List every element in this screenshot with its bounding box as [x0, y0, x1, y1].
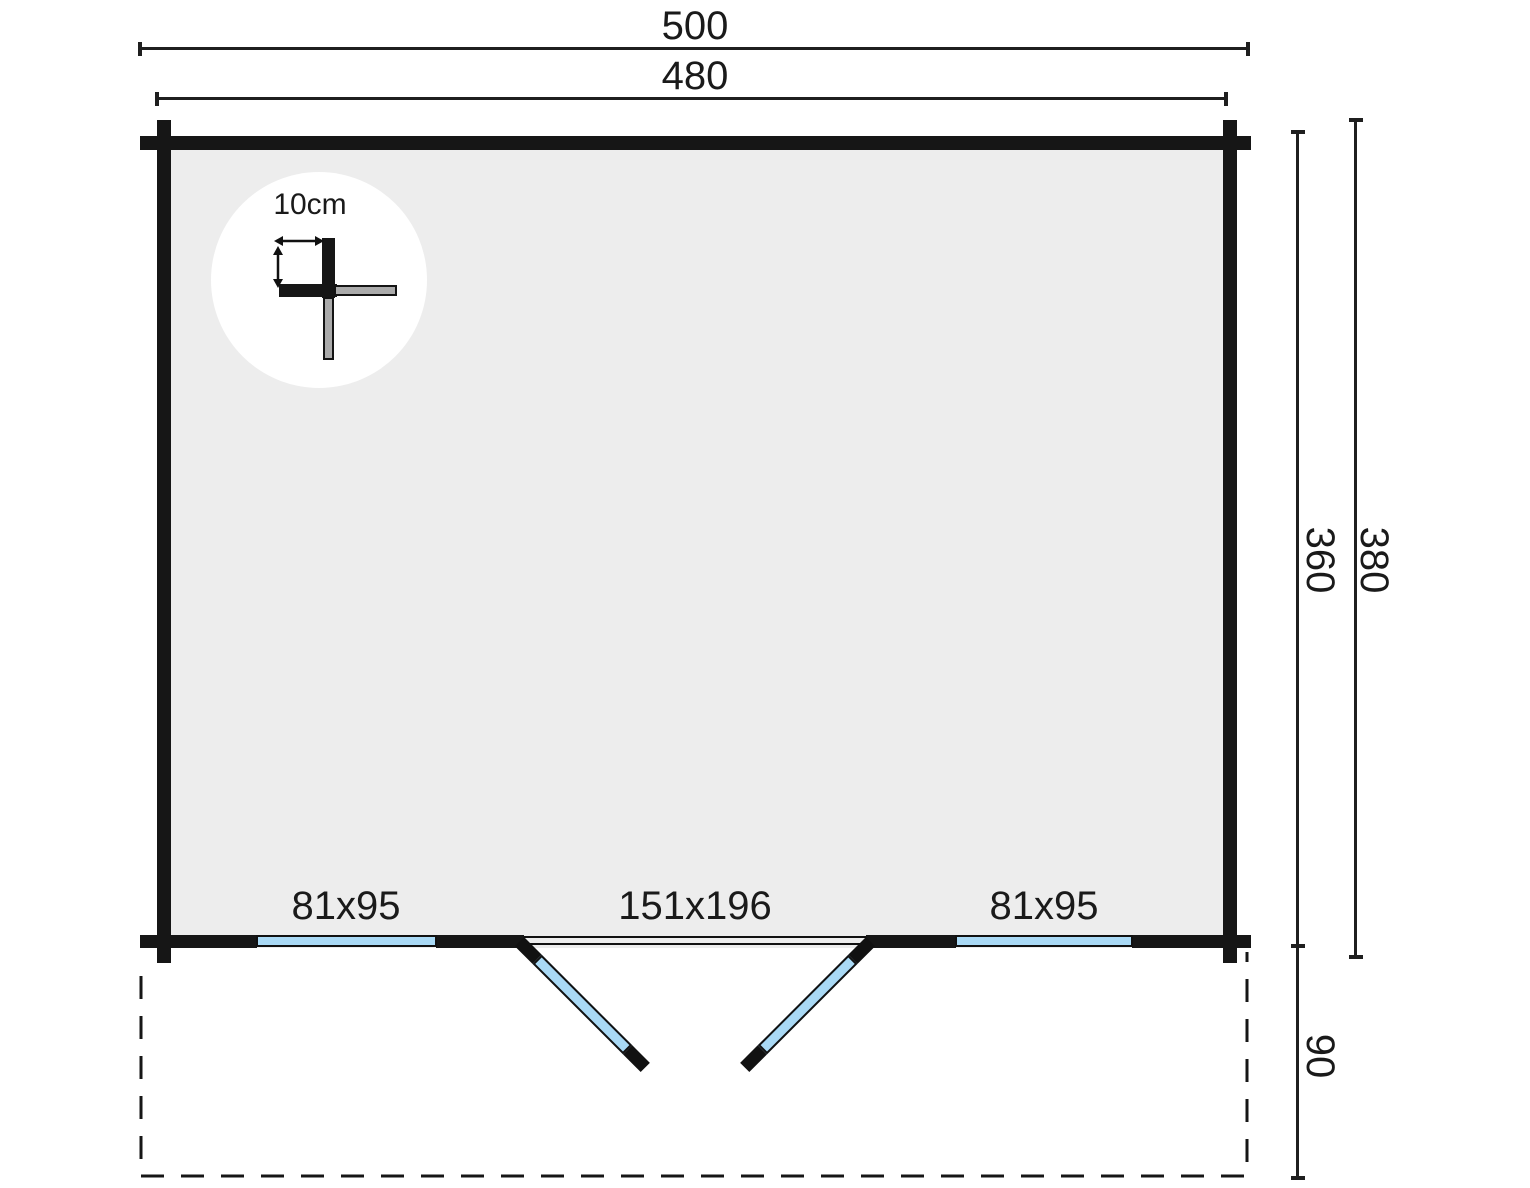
inner-depth-tick-top [1291, 130, 1305, 134]
detail-log-end-horizontal [334, 285, 397, 296]
overall-depth-value: 380 [1352, 527, 1396, 594]
inner-width-tick-right [1224, 92, 1228, 106]
floor-plan-canvas: 500 480 [0, 0, 1530, 1188]
right-window [955, 935, 1133, 947]
left-window [256, 935, 437, 947]
wall-left [157, 120, 171, 963]
inner-depth-value: 360 [1298, 527, 1342, 594]
terrace-depth-value: 90 [1298, 1034, 1342, 1079]
inner-width-value: 480 [595, 54, 795, 98]
inner-width-tick-left [155, 92, 159, 106]
wall-bottom-segment-4 [1132, 935, 1251, 948]
terrace-depth-tick-bottom [1291, 1176, 1305, 1180]
overall-width-value: 500 [595, 4, 795, 48]
overall-width-tick-left [138, 42, 142, 56]
door-threshold-inner [524, 943, 866, 945]
door-threshold-outer [524, 936, 866, 938]
overall-width-line [140, 47, 1249, 50]
wall-bottom-segment-1 [140, 935, 257, 948]
wall-top [140, 136, 1251, 150]
overall-depth-tick-top [1349, 118, 1363, 122]
wall-bottom-segment-3 [866, 935, 956, 948]
overall-depth-tick-bottom [1349, 955, 1363, 959]
terrace-dashed-outline [139, 948, 1251, 1180]
left-window-label: 81x95 [246, 884, 446, 928]
inner-width-line [157, 97, 1228, 100]
door-label: 151x196 [570, 884, 820, 928]
overall-width-tick-right [1246, 42, 1250, 56]
detail-log-end-vertical [323, 297, 334, 360]
thickness-arrows-icon [266, 230, 330, 292]
wall-bottom-segment-2 [436, 935, 524, 948]
right-window-label: 81x95 [944, 884, 1144, 928]
wall-right [1223, 120, 1237, 963]
wall-thickness-label: 10cm [235, 188, 385, 222]
